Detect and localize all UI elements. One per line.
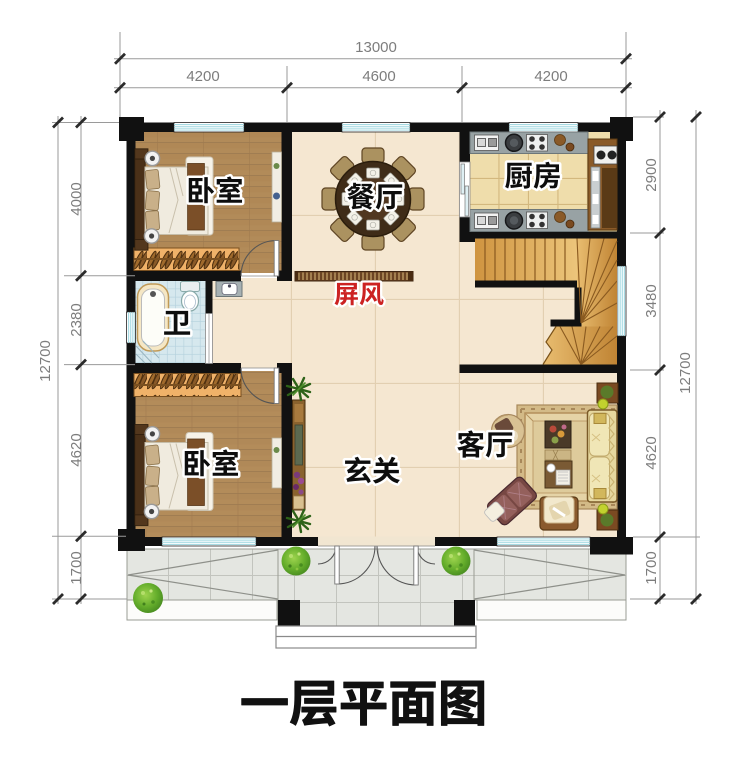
svg-text:4620: 4620 xyxy=(68,433,85,466)
svg-text:1700: 1700 xyxy=(643,551,660,584)
svg-text:12700: 12700 xyxy=(37,340,54,382)
svg-text:1700: 1700 xyxy=(68,551,85,584)
svg-text:2900: 2900 xyxy=(643,158,660,191)
svg-text:4600: 4600 xyxy=(362,68,395,85)
svg-text:2380: 2380 xyxy=(68,303,85,336)
svg-text:4620: 4620 xyxy=(643,436,660,469)
svg-text:4000: 4000 xyxy=(68,182,85,215)
svg-text:4200: 4200 xyxy=(534,68,567,85)
svg-text:13000: 13000 xyxy=(355,39,397,56)
svg-text:12700: 12700 xyxy=(677,352,694,394)
svg-text:4200: 4200 xyxy=(186,68,219,85)
svg-text:3480: 3480 xyxy=(643,284,660,317)
